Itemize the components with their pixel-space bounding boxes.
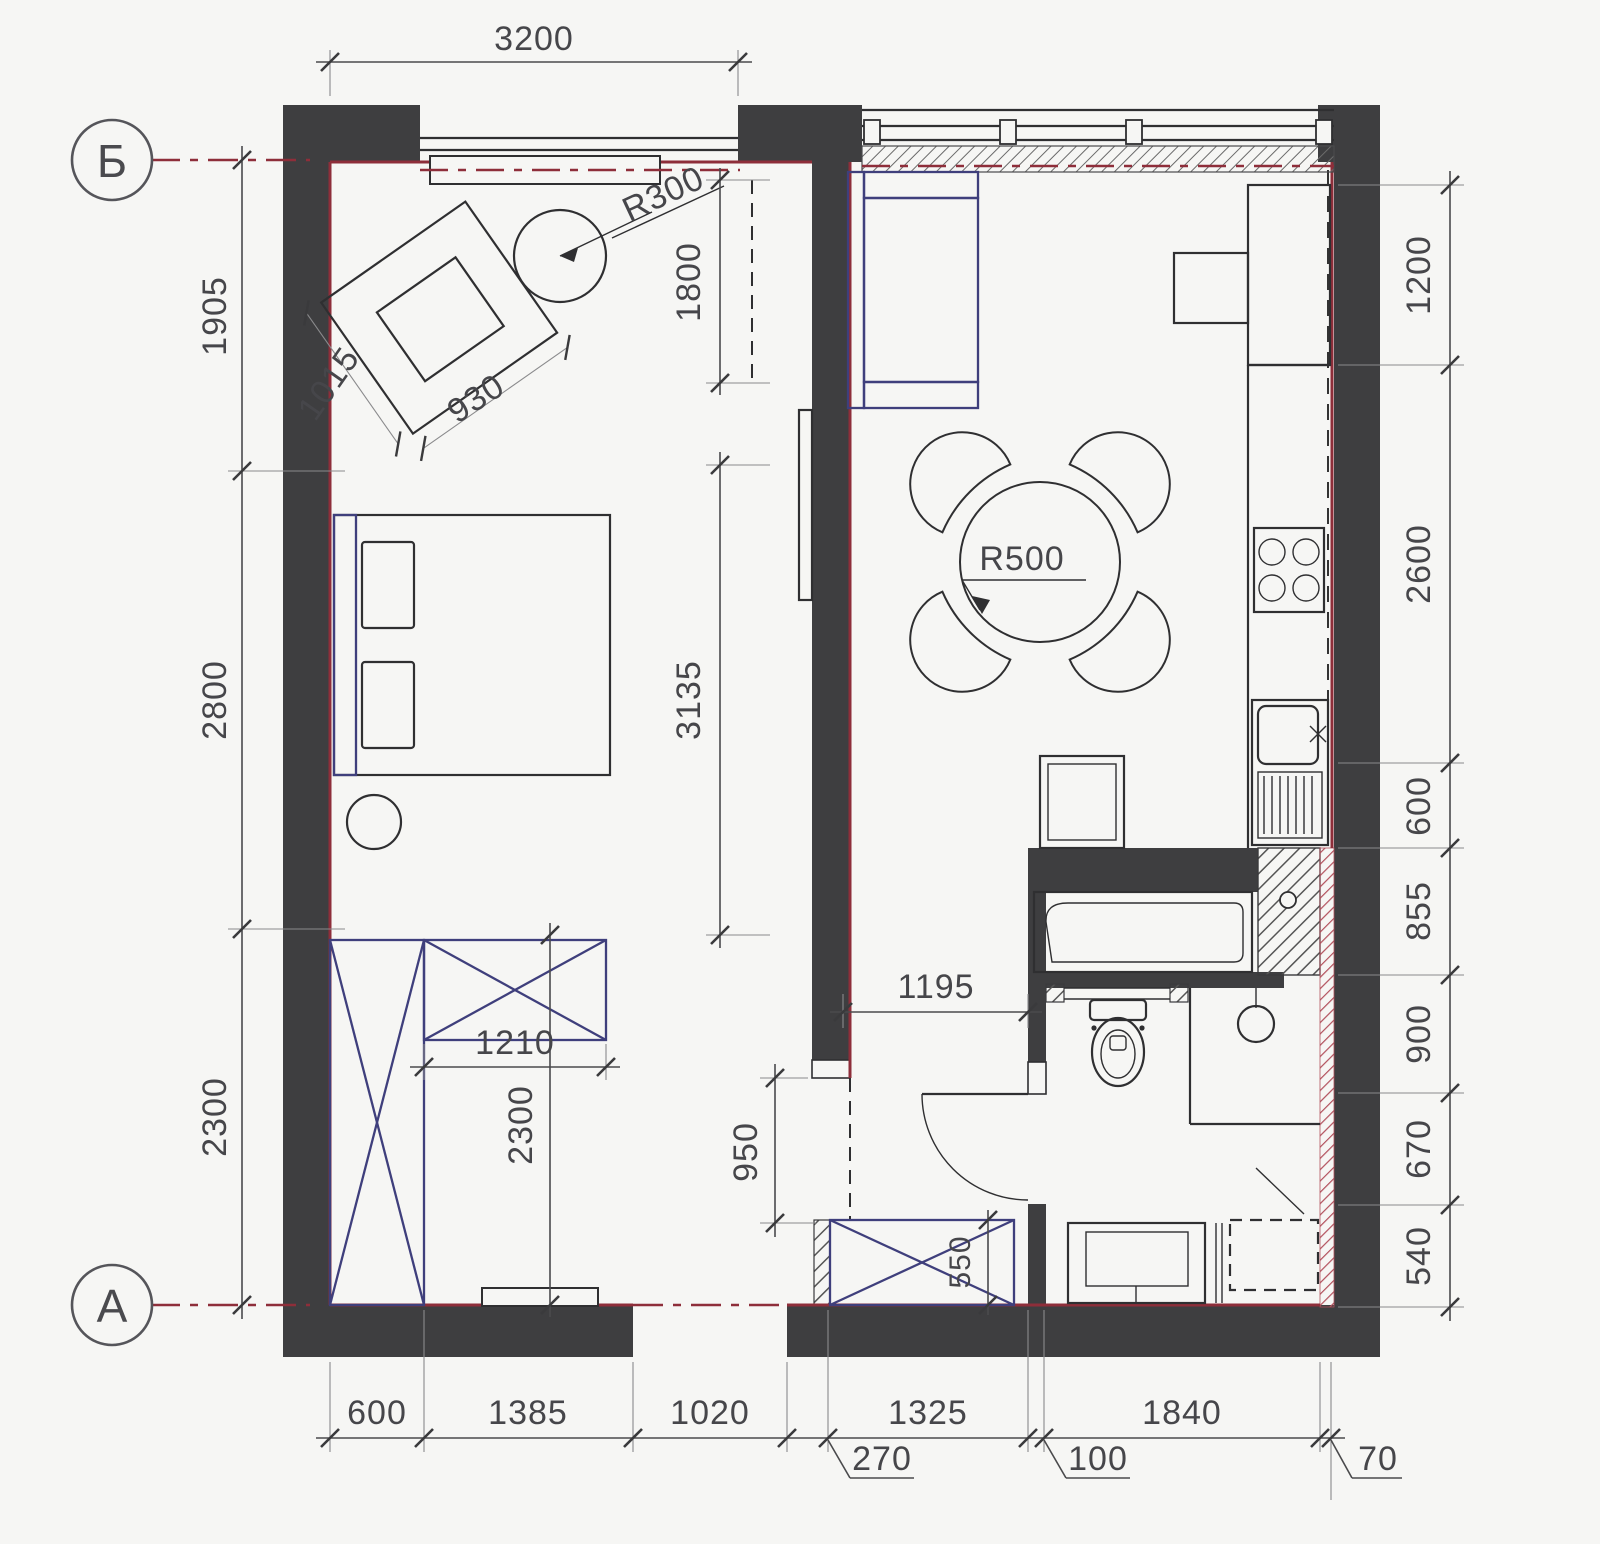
dim-right-855: 855 [1400, 881, 1438, 941]
wall-bottom-left [283, 1305, 633, 1357]
window-mullion [864, 120, 880, 144]
wall-bathroom-mid [1028, 972, 1284, 988]
tall-cabinet [1248, 185, 1330, 365]
dim-left-2800: 2800 [196, 660, 234, 740]
tv-panel [799, 410, 812, 600]
washing-machine [1068, 1223, 1222, 1303]
wall-bathroom-west-upper [1028, 848, 1046, 1062]
dim-right-900: 900 [1400, 1004, 1438, 1064]
floor-plan-page: Б А 1015 930 R300 [0, 0, 1600, 1544]
bathroom-door [922, 1094, 1028, 1200]
sofa-seat [864, 198, 978, 382]
grid-axis-label-a: А [97, 1280, 128, 1332]
appliance-dashed-box [1230, 1220, 1318, 1290]
armchair [294, 189, 580, 471]
wall-bathroom-west-lower [1028, 1204, 1046, 1305]
sofa-armrest [864, 172, 978, 198]
dim-interior-2300: 2300 [502, 1085, 540, 1165]
dim-interior-3135: 3135 [670, 660, 708, 740]
dim-leader-70: 70 [1358, 1440, 1398, 1478]
window-mullion [1126, 120, 1142, 144]
window-mullion [1316, 120, 1332, 144]
sofa-armrest [864, 382, 978, 408]
dim-interior-1195: 1195 [897, 968, 974, 1006]
pillow [362, 542, 414, 628]
floor-plan-drawing: Б А 1015 930 R300 [0, 0, 1600, 1544]
walls [283, 105, 1380, 1357]
window-sill-hatch [862, 146, 1334, 172]
dim-bottom-600: 600 [347, 1394, 407, 1432]
wall-bottom-right [787, 1305, 1380, 1357]
washbasin [1238, 988, 1274, 1042]
door-swing [922, 1094, 1028, 1200]
dim-right-600: 600 [1400, 776, 1438, 836]
grid-axis-label-b: Б [97, 135, 127, 187]
wall-right [1334, 105, 1380, 1357]
kitchen-sink [1252, 700, 1328, 845]
dim-right-1200: 1200 [1400, 235, 1438, 315]
bedside-stool [347, 795, 401, 849]
living-room-window [862, 110, 1334, 172]
wardrobe-tall [330, 940, 424, 1305]
appliance-leader [1256, 1168, 1304, 1214]
niche-jamb-right [1170, 984, 1188, 1002]
hall-wardrobe [830, 1220, 1014, 1305]
hall-shaft-hatch [814, 1220, 830, 1305]
wall-finish-strip [1320, 848, 1334, 1307]
bed [334, 515, 610, 775]
toilet [1090, 1000, 1146, 1086]
dim-leader-100: 100 [1068, 1440, 1128, 1478]
kitchen-appliance-box [1174, 253, 1248, 323]
bathtub [1034, 892, 1252, 972]
partition-end-jamb [812, 1060, 850, 1078]
wall-top-bedroom-left [283, 105, 420, 162]
dim-bottom-1840: 1840 [1142, 1394, 1222, 1432]
dim-chain-top: 3200 [316, 20, 752, 96]
dim-bottom-1020: 1020 [670, 1394, 750, 1432]
window-mullion [1000, 120, 1016, 144]
door-jamb-upper [1028, 1062, 1046, 1094]
dim-bottom-1325: 1325 [888, 1394, 968, 1432]
dim-interior-1800: 1800 [670, 242, 708, 322]
bed-headboard [334, 515, 356, 775]
fridge [1040, 756, 1124, 848]
radiator [482, 1288, 598, 1306]
grid-axis-bubbles: Б А [72, 120, 152, 1345]
wall-bathroom-top [1028, 848, 1258, 892]
dim-interior-950: 950 [727, 1122, 765, 1182]
wall-left [283, 105, 330, 1357]
dim-top-3200: 3200 [494, 20, 574, 58]
dim-leader-270: 270 [852, 1440, 912, 1478]
pillow [362, 662, 414, 748]
sofa [848, 172, 978, 408]
dim-right-670: 670 [1400, 1119, 1438, 1179]
dim-left-2300: 2300 [196, 1077, 234, 1157]
dim-r500-label: R500 [979, 540, 1064, 578]
dim-left-1905: 1905 [196, 276, 234, 356]
dim-right-2600: 2600 [1400, 524, 1438, 604]
vent-pipe [1280, 892, 1296, 908]
niche-jamb-left [1046, 984, 1064, 1002]
dim-interior-1210: 1210 [475, 1024, 555, 1062]
dim-interior: 1800 3135 2300 1210 1195 950 550 [410, 168, 1042, 1317]
dim-armchair-front: 930 [441, 367, 512, 431]
wall-top-center-pier [738, 105, 862, 162]
dim-interior-550: 550 [944, 1235, 977, 1288]
dim-bottom-1385: 1385 [488, 1394, 568, 1432]
vent-shaft-hatch [1258, 848, 1320, 975]
dim-right-540: 540 [1400, 1226, 1438, 1286]
wall-partition-bedroom [812, 162, 850, 1078]
